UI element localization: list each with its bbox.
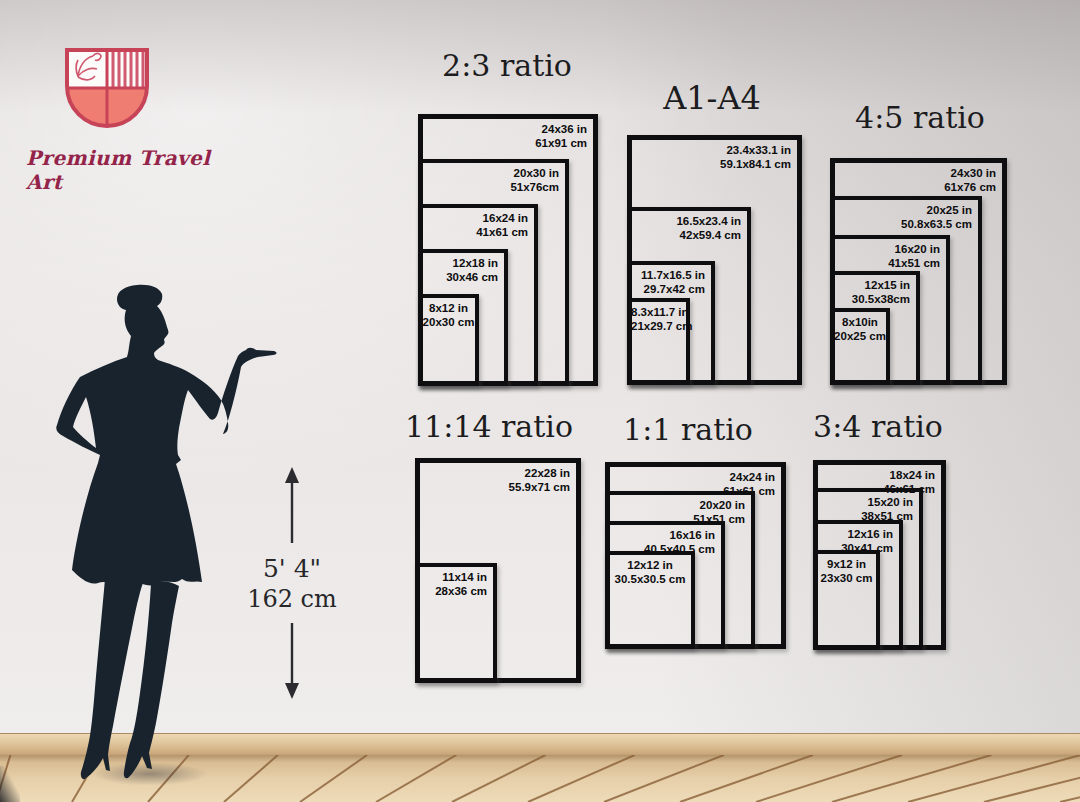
size-box: 8x12 in20x30 cm — [418, 294, 479, 386]
size-inches: 12x12 in — [609, 558, 691, 572]
size-label: 11x14 in28x36 cm — [435, 570, 487, 598]
size-inches: 23.4x33.1 in — [720, 143, 791, 157]
size-group-title: A1-A4 — [663, 79, 761, 117]
size-cm: 30.5x30.5 cm — [609, 572, 691, 586]
size-cm: 20x25 cm — [834, 329, 886, 343]
corner-shadow — [0, 766, 20, 802]
size-cm: 41x61 cm — [476, 225, 528, 239]
size-label: 16x24 in41x61 cm — [476, 211, 528, 239]
silhouette-body — [56, 285, 276, 586]
size-box: 9x12 in23x30 cm — [813, 550, 880, 650]
size-box: 11x14 in28x36 cm — [415, 563, 497, 683]
size-label: 8x10in20x25 cm — [834, 315, 886, 343]
size-box: 8x10in20x25 cm — [830, 308, 890, 385]
size-inches: 16x24 in — [476, 211, 528, 225]
size-inches: 8.3x11.7 in — [631, 305, 686, 319]
size-cm: 30x46 cm — [446, 270, 498, 284]
size-cm: 23x30 cm — [817, 571, 876, 585]
size-inches: 16x20 in — [888, 242, 940, 256]
size-inches: 16x16 in — [644, 528, 715, 542]
size-cm: 42x59.4 cm — [676, 228, 741, 242]
size-cm: 59.1x84.1 cm — [720, 157, 791, 171]
woman-silhouette — [55, 283, 285, 783]
size-group-title: 1:1 ratio — [623, 412, 753, 447]
size-inches: 9x12 in — [817, 557, 876, 571]
size-label: 20x25 in50.8x63.5 cm — [901, 203, 972, 231]
size-label: 11.7x16.5 in29.7x42 cm — [641, 268, 705, 296]
size-inches: 11x14 in — [435, 570, 487, 584]
size-inches: 12x16 in — [841, 527, 893, 541]
size-label: 20x30 in51x76cm — [510, 166, 559, 194]
size-cm: 55.9x71 cm — [509, 480, 570, 494]
size-box: 8.3x11.7 in21x29.7 cm — [627, 298, 690, 385]
size-label: 24x36 in61x91 cm — [535, 122, 587, 150]
size-inches: 20x30 in — [510, 166, 559, 180]
size-inches: 16.5x23.4 in — [676, 214, 741, 228]
size-label: 9x12 in23x30 cm — [817, 557, 876, 585]
size-group-title: 3:4 ratio — [813, 409, 943, 444]
size-cm: 50.8x63.5 cm — [901, 217, 972, 231]
size-inches: 24x36 in — [535, 122, 587, 136]
size-label: 8x12 in20x30 cm — [422, 301, 475, 329]
size-label: 8.3x11.7 in21x29.7 cm — [631, 305, 686, 333]
size-cm: 61x91 cm — [535, 136, 587, 150]
height-feet-label: 5' 4" — [242, 554, 342, 583]
size-inches: 8x10in — [834, 315, 886, 329]
brand-shield-logo-icon — [63, 46, 151, 130]
size-label: 15x20 in38x51 cm — [861, 495, 913, 523]
size-label: 12x18 in30x46 cm — [446, 256, 498, 284]
size-label: 16.5x23.4 in42x59.4 cm — [676, 214, 741, 242]
scene: Premium Travel Art 5' 4" 162 cm 2:3 rati… — [0, 0, 1080, 802]
size-cm: 20x30 cm — [422, 315, 475, 329]
size-cm: 21x29.7 cm — [631, 319, 686, 333]
size-label: 16x20 in41x51 cm — [888, 242, 940, 270]
size-cm: 30.5x38cm — [852, 292, 910, 306]
size-label: 23.4x33.1 in59.1x84.1 cm — [720, 143, 791, 171]
size-inches: 12x18 in — [446, 256, 498, 270]
size-box: 12x12 in30.5x30.5 cm — [605, 551, 695, 649]
size-cm: 41x51 cm — [888, 256, 940, 270]
size-inches: 20x20 in — [693, 498, 745, 512]
size-label: 12x15 in30.5x38cm — [852, 278, 910, 306]
height-cm-label: 162 cm — [242, 585, 342, 613]
size-cm: 61x76 cm — [944, 180, 996, 194]
size-inches: 20x25 in — [901, 203, 972, 217]
silhouette-legs — [81, 577, 179, 779]
size-inches: 15x20 in — [861, 495, 913, 509]
size-inches: 11.7x16.5 in — [641, 268, 705, 282]
size-inches: 24x30 in — [944, 166, 996, 180]
size-label: 24x30 in61x76 cm — [944, 166, 996, 194]
size-cm: 28x36 cm — [435, 584, 487, 598]
size-inches: 18x24 in — [883, 468, 935, 482]
size-group-title: 2:3 ratio — [442, 48, 572, 83]
size-inches: 22x28 in — [509, 466, 570, 480]
size-cm: 29.7x42 cm — [641, 282, 705, 296]
size-inches: 12x15 in — [852, 278, 910, 292]
size-label: 12x12 in30.5x30.5 cm — [609, 558, 691, 586]
brand-name: Premium Travel Art — [26, 146, 226, 194]
size-inches: 24x24 in — [723, 470, 775, 484]
size-cm: 51x76cm — [510, 180, 559, 194]
size-inches: 8x12 in — [422, 301, 475, 315]
size-group-title: 4:5 ratio — [855, 100, 985, 135]
size-group-title: 11:14 ratio — [405, 409, 573, 444]
size-label: 22x28 in55.9x71 cm — [509, 466, 570, 494]
